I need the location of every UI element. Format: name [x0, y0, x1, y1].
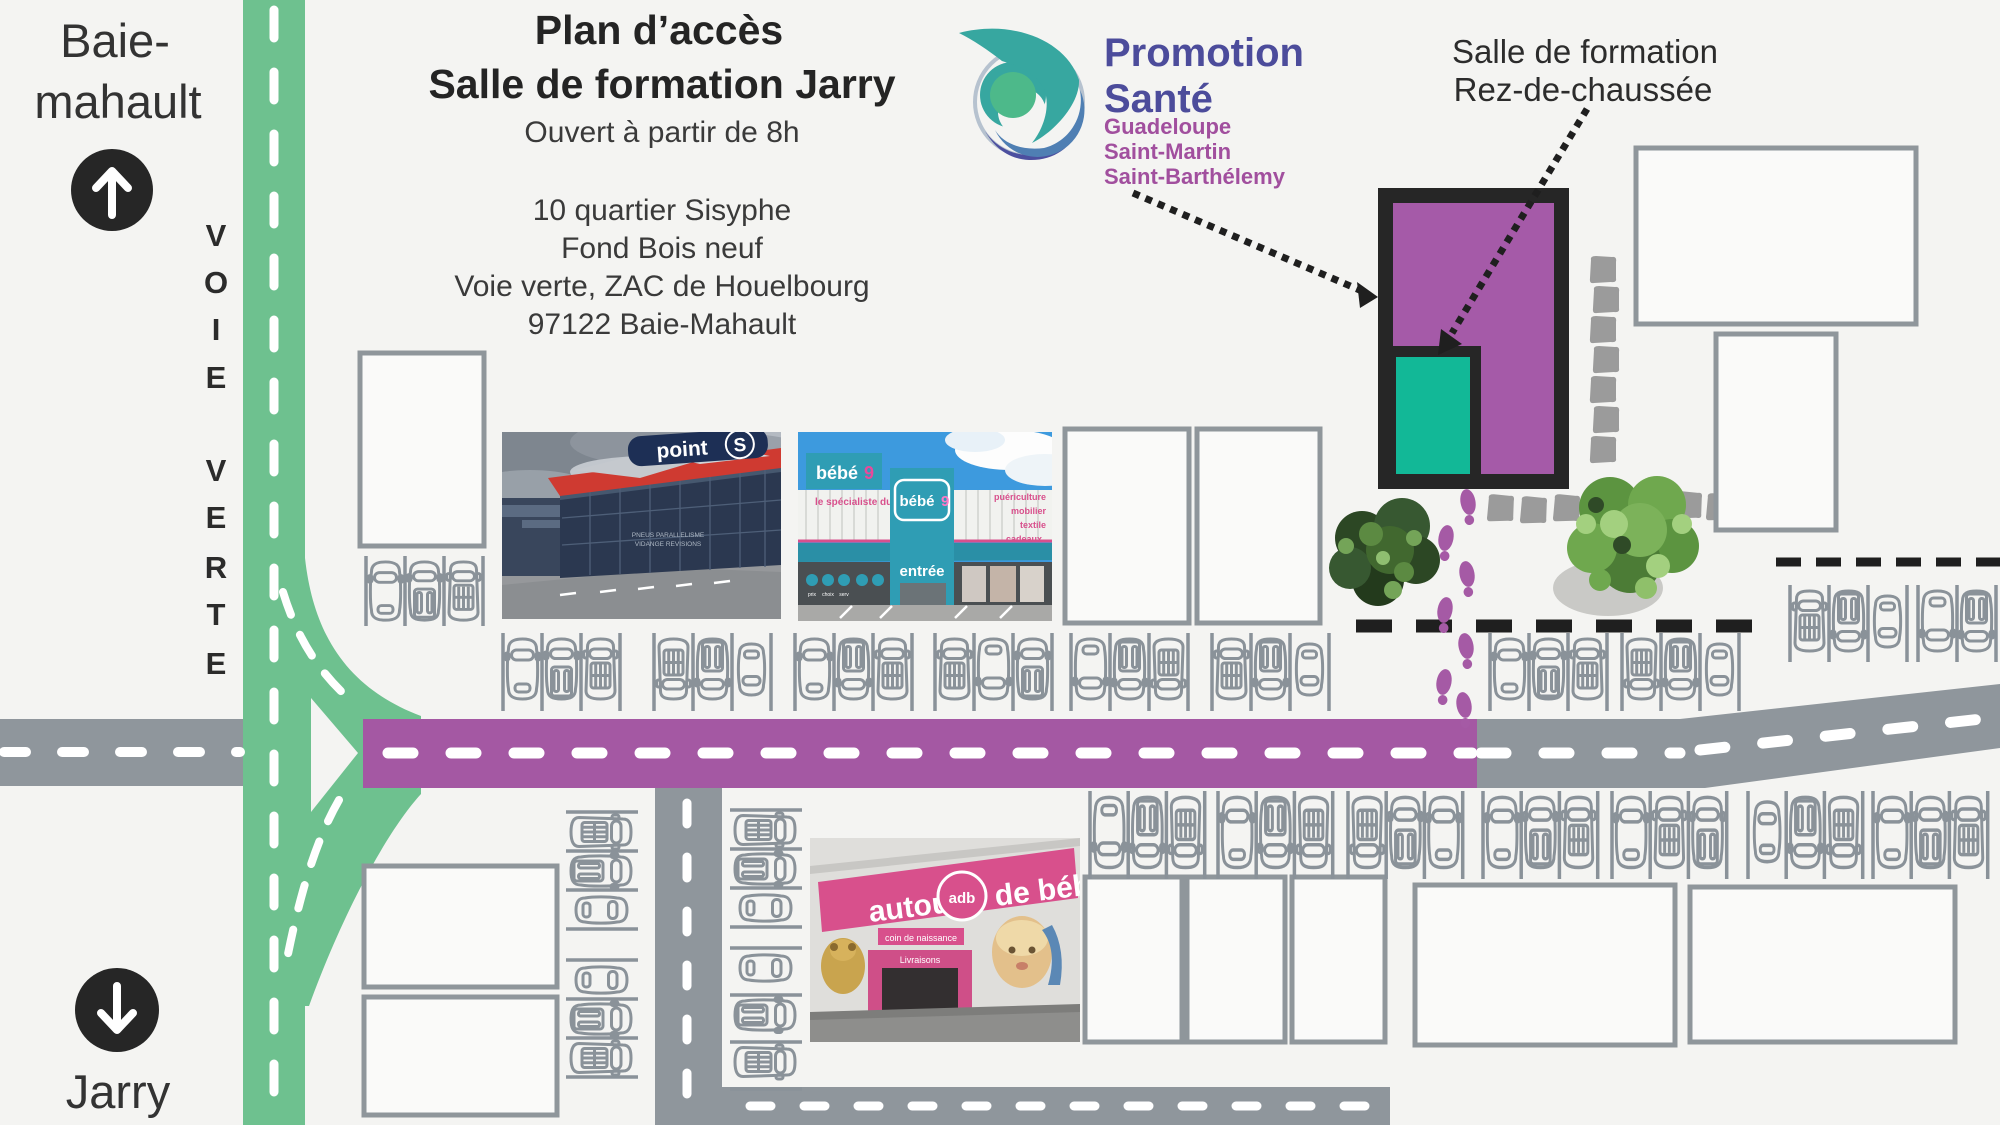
svg-text:Salle de formation: Salle de formation	[1452, 33, 1718, 70]
svg-text:S: S	[733, 435, 747, 457]
svg-text:10 quartier Sisyphe: 10 quartier Sisyphe	[533, 194, 792, 227]
svg-text:T: T	[207, 597, 226, 632]
svg-text:9: 9	[864, 463, 874, 483]
svg-text:V: V	[206, 453, 227, 488]
svg-text:Rez-de-chaussée: Rez-de-chaussée	[1454, 71, 1713, 108]
svg-text:Ouvert à partir de 8h: Ouvert à partir de 8h	[524, 116, 799, 149]
svg-text:Voie verte, ZAC de Houelbourg: Voie verte, ZAC de Houelbourg	[454, 270, 869, 303]
svg-text:choix: choix	[822, 592, 834, 598]
svg-text:9: 9	[941, 493, 949, 510]
svg-text:Salle de formation Jarry: Salle de formation Jarry	[428, 61, 895, 107]
svg-text:mobilier: mobilier	[1011, 506, 1047, 516]
svg-text:I: I	[212, 312, 221, 347]
svg-text:cadeaux: cadeaux	[1006, 534, 1042, 544]
svg-text:97122 Baie-Mahault: 97122 Baie-Mahault	[528, 308, 797, 341]
svg-text:coin de naissance: coin de naissance	[885, 933, 957, 943]
svg-text:Fond Bois neuf: Fond Bois neuf	[561, 232, 763, 265]
svg-text:O: O	[204, 265, 228, 300]
svg-text:E: E	[206, 646, 227, 681]
svg-text:Guadeloupe: Guadeloupe	[1104, 114, 1231, 139]
svg-text:mahault: mahault	[34, 75, 201, 128]
svg-text:bébé: bébé	[816, 463, 858, 483]
svg-text:puériculture: puériculture	[994, 492, 1046, 502]
svg-text:serv: serv	[839, 592, 849, 598]
svg-text:Jarry: Jarry	[66, 1065, 171, 1118]
svg-text:V: V	[206, 218, 227, 253]
svg-text:Livraisons: Livraisons	[900, 955, 941, 965]
svg-text:Saint-Martin: Saint-Martin	[1104, 139, 1231, 164]
svg-text:Baie-: Baie-	[60, 14, 170, 67]
svg-text:adb: adb	[949, 890, 976, 907]
svg-text:VIDANGE REVISIONS: VIDANGE REVISIONS	[635, 541, 702, 548]
svg-text:E: E	[206, 500, 227, 535]
svg-text:R: R	[205, 550, 227, 585]
svg-text:Saint-Barthélemy: Saint-Barthélemy	[1104, 164, 1286, 189]
svg-text:entrée: entrée	[899, 563, 944, 580]
svg-text:bébé: bébé	[899, 493, 934, 510]
svg-text:PNEUS PARALLELISME: PNEUS PARALLELISME	[632, 532, 705, 539]
svg-text:Plan d’accès: Plan d’accès	[535, 7, 783, 53]
svg-text:point: point	[656, 436, 709, 463]
svg-text:textile: textile	[1020, 520, 1046, 530]
svg-text:E: E	[206, 360, 227, 395]
svg-text:Promotion: Promotion	[1104, 31, 1304, 75]
svg-text:prix: prix	[808, 592, 817, 598]
